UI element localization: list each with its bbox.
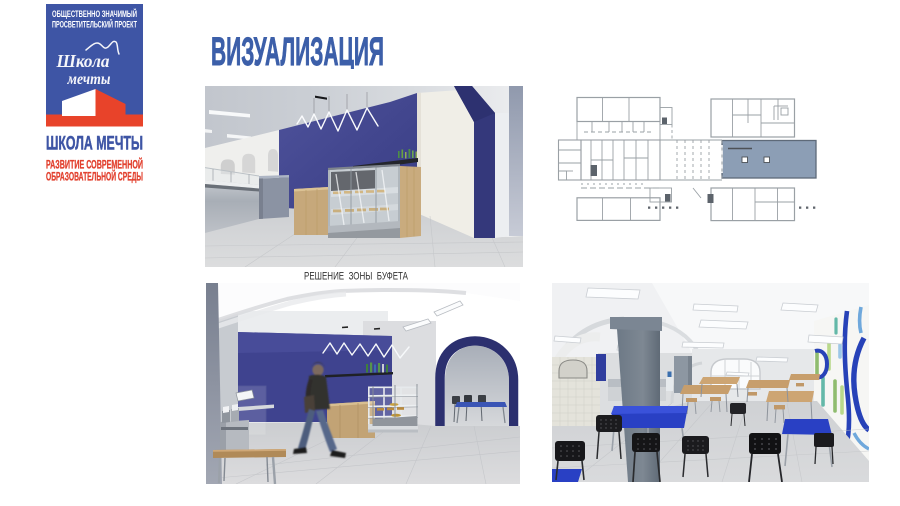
- svg-text:ОБРАЗОВАТЕЛЬНОЙ СРЕДЫ: ОБРАЗОВАТЕЛЬНОЙ СРЕДЫ: [46, 171, 143, 184]
- svg-text:ШКОЛА МЕЧТЫ: ШКОЛА МЕЧТЫ: [46, 133, 143, 155]
- svg-text:ВИЗУАЛИЗАЦИЯ: ВИЗУАЛИЗАЦИЯ: [211, 33, 384, 69]
- svg-text:Школа: Школа: [56, 51, 110, 71]
- svg-text:мечты: мечты: [67, 71, 111, 88]
- svg-text:РЕШЕНИЕ ЗОНЫ БУФЕТА: РЕШЕНИЕ ЗОНЫ БУФЕТА: [304, 271, 409, 283]
- svg-text:ПРОСВЕТИТЕЛЬСКИЙ ПРОЕКТ: ПРОСВЕТИТЕЛЬСКИЙ ПРОЕКТ: [52, 18, 137, 30]
- svg-text:ОБЩЕСТВЕННО ЗНАЧИМЫЙ: ОБЩЕСТВЕННО ЗНАЧИМЫЙ: [52, 8, 137, 20]
